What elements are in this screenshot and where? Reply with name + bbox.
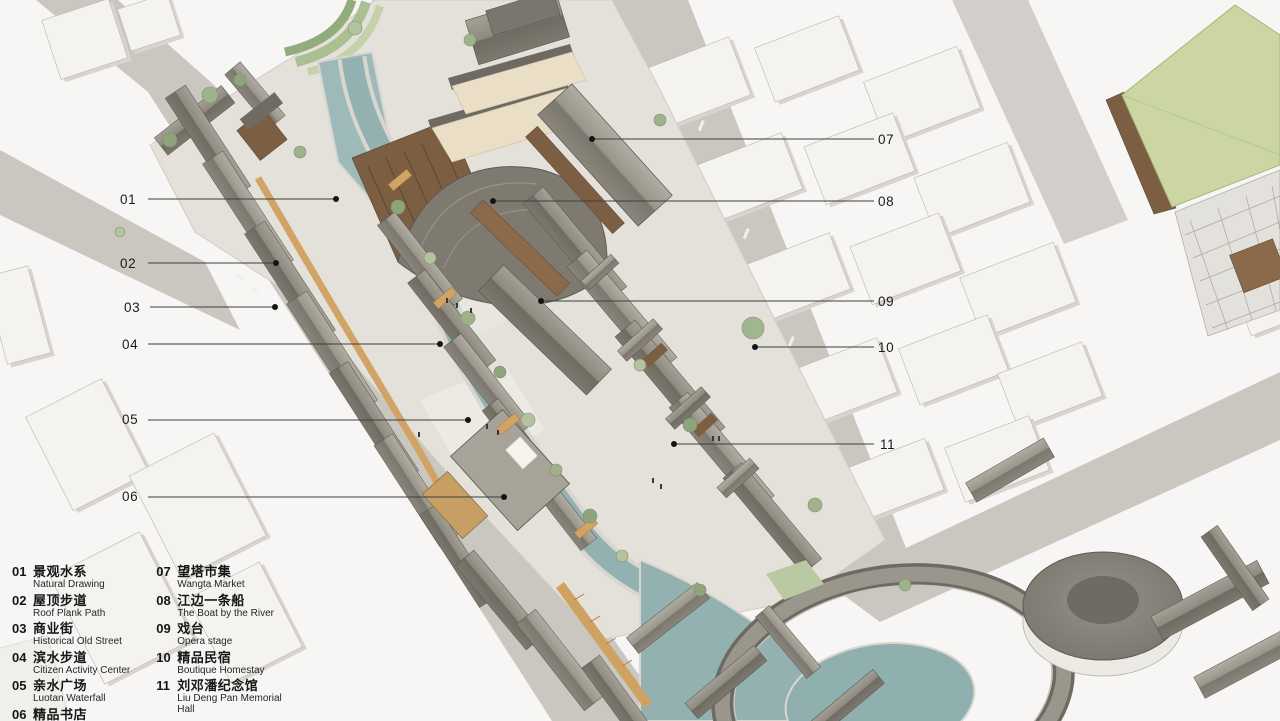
- legend-item-10: 10精品民宿 Boutique Homestay: [156, 651, 289, 677]
- legend-zh: 滨水步道: [33, 651, 87, 664]
- legend-item-06: 06精品书店 Boutique Bookstore: [12, 708, 130, 721]
- legend-en: Historical Old Street: [33, 637, 130, 648]
- callout-number-07: 07: [878, 132, 894, 147]
- legend-num: 08: [156, 594, 177, 607]
- legend-item-09: 09戏台 Opera stage: [156, 622, 289, 648]
- legend-num: 04: [12, 651, 33, 664]
- legend-zh: 景观水系: [33, 565, 87, 578]
- legend-num: 09: [156, 622, 177, 635]
- legend-num: 11: [156, 679, 177, 692]
- legend-en: The Boat by the River: [177, 609, 289, 620]
- legend-item-05: 05亲水广场 Luotan Waterfall: [12, 679, 130, 705]
- legend-en: Natural Drawing: [33, 580, 130, 591]
- legend-column-1: 01景观水系 Natural Drawing 02屋顶步道 Roof Plank…: [12, 565, 130, 721]
- callout-number-05: 05: [122, 412, 138, 427]
- legend-zh: 江边一条船: [177, 594, 245, 607]
- callout-number-02: 02: [120, 256, 136, 271]
- legend-num: 06: [12, 708, 33, 721]
- legend-zh: 精品书店: [33, 708, 87, 721]
- callout-number-04: 04: [122, 337, 138, 352]
- legend-item-04: 04滨水步道 Citizen Activity Center: [12, 651, 130, 677]
- legend-zh: 精品民宿: [177, 651, 231, 664]
- legend-zh: 商业街: [33, 622, 74, 635]
- legend-en: Luotan Waterfall: [33, 694, 130, 705]
- legend-item-01: 01景观水系 Natural Drawing: [12, 565, 130, 591]
- legend-item-02: 02屋顶步道 Roof Plank Path: [12, 594, 130, 620]
- legend-en: Boutique Homestay: [177, 666, 289, 677]
- legend-num: 07: [156, 565, 177, 578]
- legend-en: Opera stage: [177, 637, 289, 648]
- legend-item-03: 03商业街 Historical Old Street: [12, 622, 130, 648]
- masterplan-canvas: 01 02 03 04 05 06 07 08 09 10 11 01景观水系 …: [0, 0, 1280, 721]
- legend-item-07: 07望塔市集 Wangta Market: [156, 565, 289, 591]
- legend-zh: 戏台: [177, 622, 204, 635]
- callout-number-08: 08: [878, 194, 894, 209]
- legend-en: Citizen Activity Center: [33, 666, 130, 677]
- legend-zh: 刘邓潘纪念馆: [177, 679, 258, 692]
- legend-column-2: 07望塔市集 Wangta Market 08江边一条船 The Boat by…: [156, 565, 289, 721]
- legend-zh: 亲水广场: [33, 679, 87, 692]
- legend-en: Wangta Market: [177, 580, 289, 591]
- legend-en: Roof Plank Path: [33, 609, 130, 620]
- callout-number-06: 06: [122, 489, 138, 504]
- legend-item-08: 08江边一条船 The Boat by the River: [156, 594, 289, 620]
- legend-zh: 屋顶步道: [33, 594, 87, 607]
- legend-num: 01: [12, 565, 33, 578]
- legend-zh: 望塔市集: [177, 565, 231, 578]
- legend-num: 10: [156, 651, 177, 664]
- legend-num: 02: [12, 594, 33, 607]
- legend-num: 05: [12, 679, 33, 692]
- legend-num: 03: [12, 622, 33, 635]
- callout-number-03: 03: [124, 300, 140, 315]
- legend: 01景观水系 Natural Drawing 02屋顶步道 Roof Plank…: [12, 565, 289, 721]
- legend-item-11: 11刘邓潘纪念馆 Liu Deng Pan Memorial Hall: [156, 679, 289, 715]
- callout-number-09: 09: [878, 294, 894, 309]
- legend-en: Liu Deng Pan Memorial Hall: [177, 694, 289, 715]
- callout-number-01: 01: [120, 192, 136, 207]
- callout-number-11: 11: [880, 437, 895, 452]
- callout-number-10: 10: [878, 340, 894, 355]
